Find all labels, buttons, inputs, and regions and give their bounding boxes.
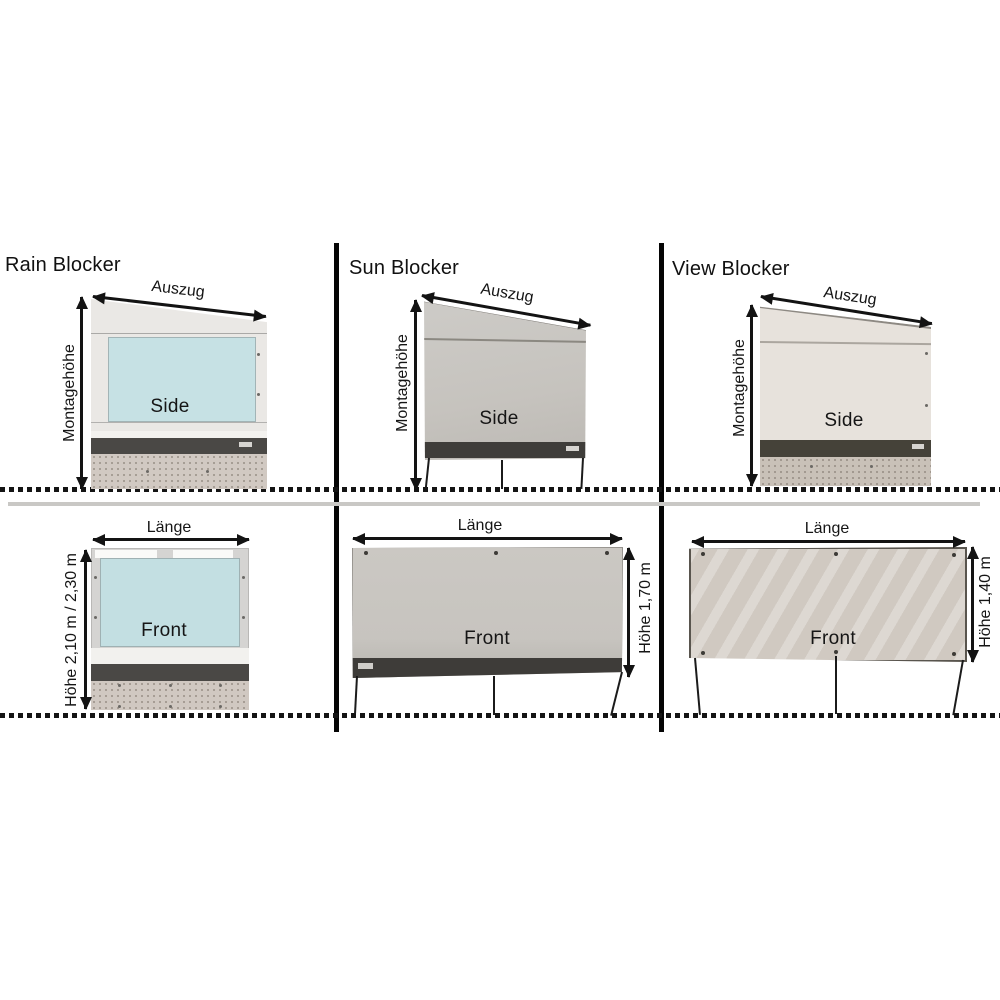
rain-side-white-rail	[91, 431, 267, 438]
rain-front-top-rail-segment-1	[95, 550, 157, 558]
rain-side-snap-4	[206, 470, 209, 473]
rain-front-snap-7	[219, 684, 222, 687]
rain-side-frame-line-2	[91, 422, 267, 423]
view-front-snap-6	[952, 652, 956, 656]
view-front-snap-2	[834, 552, 838, 556]
rain-front-snap-5	[118, 684, 121, 687]
rain-auszug-label: Auszug	[150, 278, 205, 302]
view-montagehoehe-arrow-icon	[750, 305, 753, 486]
view-hoehe-arrow-icon	[971, 547, 974, 662]
rain-side-caption: Side	[150, 396, 189, 418]
rain-front-snap-6	[169, 684, 172, 687]
sun-front-leg-3	[610, 672, 623, 716]
sun-blocker-title: Sun Blocker	[349, 257, 459, 280]
view-laenge-arrow-icon	[692, 540, 965, 543]
rain-side-brand-tag	[239, 442, 252, 447]
sun-front-snap-2	[494, 551, 498, 555]
rain-front-snap-2	[94, 616, 97, 619]
view-montagehoehe-label: Montagehöhe	[731, 339, 749, 437]
rain-blocker-title: Rain Blocker	[5, 254, 121, 277]
rain-laenge-label: Länge	[147, 519, 192, 537]
rain-side-frame-line	[91, 333, 267, 334]
rain-front-snap-3	[242, 576, 245, 579]
view-side-snap-1	[925, 352, 928, 355]
view-side-snap-2	[925, 404, 928, 407]
ground-separator-line	[8, 502, 980, 506]
view-side-panel-image	[760, 305, 931, 486]
ground-dotted-line-bottom	[0, 713, 1000, 718]
sun-hoehe-arrow-icon	[627, 548, 630, 677]
view-front-snap-1	[701, 552, 705, 556]
rain-hoehe-arrow-icon	[84, 550, 87, 709]
view-blocker-title: View Blocker	[672, 258, 790, 281]
view-front-snap-4	[701, 651, 705, 655]
sun-montagehoehe-label: Montagehöhe	[394, 334, 412, 432]
sun-side-leg-3	[580, 458, 584, 489]
sun-montagehoehe-arrow-icon	[414, 300, 417, 490]
sun-side-top-edge	[424, 300, 588, 331]
sun-side-brand-tag	[566, 446, 579, 451]
rain-front-white-rail	[91, 648, 249, 664]
rain-side-skirt	[91, 454, 267, 489]
sun-side-leg-2	[501, 460, 503, 489]
sun-side-caption: Side	[479, 408, 518, 430]
rain-side-snap-3	[146, 470, 149, 473]
sun-front-snap-3	[605, 551, 609, 555]
view-front-leg-2	[835, 656, 837, 714]
view-front-snap-3	[952, 553, 956, 557]
view-hoehe-label: Höhe 1,40 m	[977, 556, 995, 648]
sun-front-leg-2	[493, 676, 495, 715]
sun-hoehe-label: Höhe 1,70 m	[637, 562, 655, 654]
rain-side-panel-image	[91, 298, 267, 489]
rain-front-caption: Front	[141, 620, 187, 642]
rain-front-snap-8	[118, 705, 121, 708]
view-side-skirt	[760, 457, 931, 486]
view-front-leg-3	[952, 660, 964, 715]
rain-front-snap-4	[242, 616, 245, 619]
rain-front-dark-rail	[91, 664, 249, 681]
rain-front-top-rail-segment-2	[173, 550, 233, 558]
rain-montagehoehe-arrow-icon	[80, 297, 83, 489]
sun-side-panel-image	[424, 300, 586, 460]
sun-side-dark-rail	[424, 442, 586, 458]
sun-laenge-label: Länge	[458, 517, 503, 535]
view-side-snap-4	[870, 465, 873, 468]
rain-front-snap-1	[94, 576, 97, 579]
rain-hoehe-label: Höhe 2,10 m / 2,30 m	[63, 553, 81, 707]
rain-laenge-arrow-icon	[93, 538, 249, 541]
sun-front-panel-image	[352, 547, 623, 678]
sun-side-leg-1	[425, 458, 430, 489]
sun-side-seam-line	[424, 338, 586, 343]
view-side-snap-3	[810, 465, 813, 468]
view-front-caption: Front	[810, 628, 856, 650]
view-side-caption: Side	[824, 410, 863, 432]
blocker-comparison-diagram: Rain Blocker Auszug Montagehöhe Side	[0, 0, 1000, 1000]
view-front-snap-5	[834, 650, 838, 654]
sun-front-caption: Front	[464, 628, 510, 650]
rain-front-snap-9	[169, 705, 172, 708]
sun-laenge-arrow-icon	[353, 537, 622, 540]
sun-front-snap-1	[364, 551, 368, 555]
view-side-brand-tag	[912, 444, 924, 449]
view-side-seam-line	[760, 341, 931, 345]
rain-montagehoehe-label: Montagehöhe	[61, 344, 79, 442]
sun-front-leg-1	[354, 676, 358, 714]
view-side-dark-rail	[760, 440, 931, 457]
view-front-leg-1	[694, 658, 701, 715]
rain-side-snap-2	[257, 393, 260, 396]
rain-side-snap-1	[257, 353, 260, 356]
rain-front-snap-10	[219, 705, 222, 708]
view-laenge-label: Länge	[805, 520, 850, 538]
sun-front-dark-rail	[352, 658, 623, 678]
sun-front-brand-tag	[358, 663, 373, 669]
sun-auszug-label: Auszug	[479, 281, 535, 308]
